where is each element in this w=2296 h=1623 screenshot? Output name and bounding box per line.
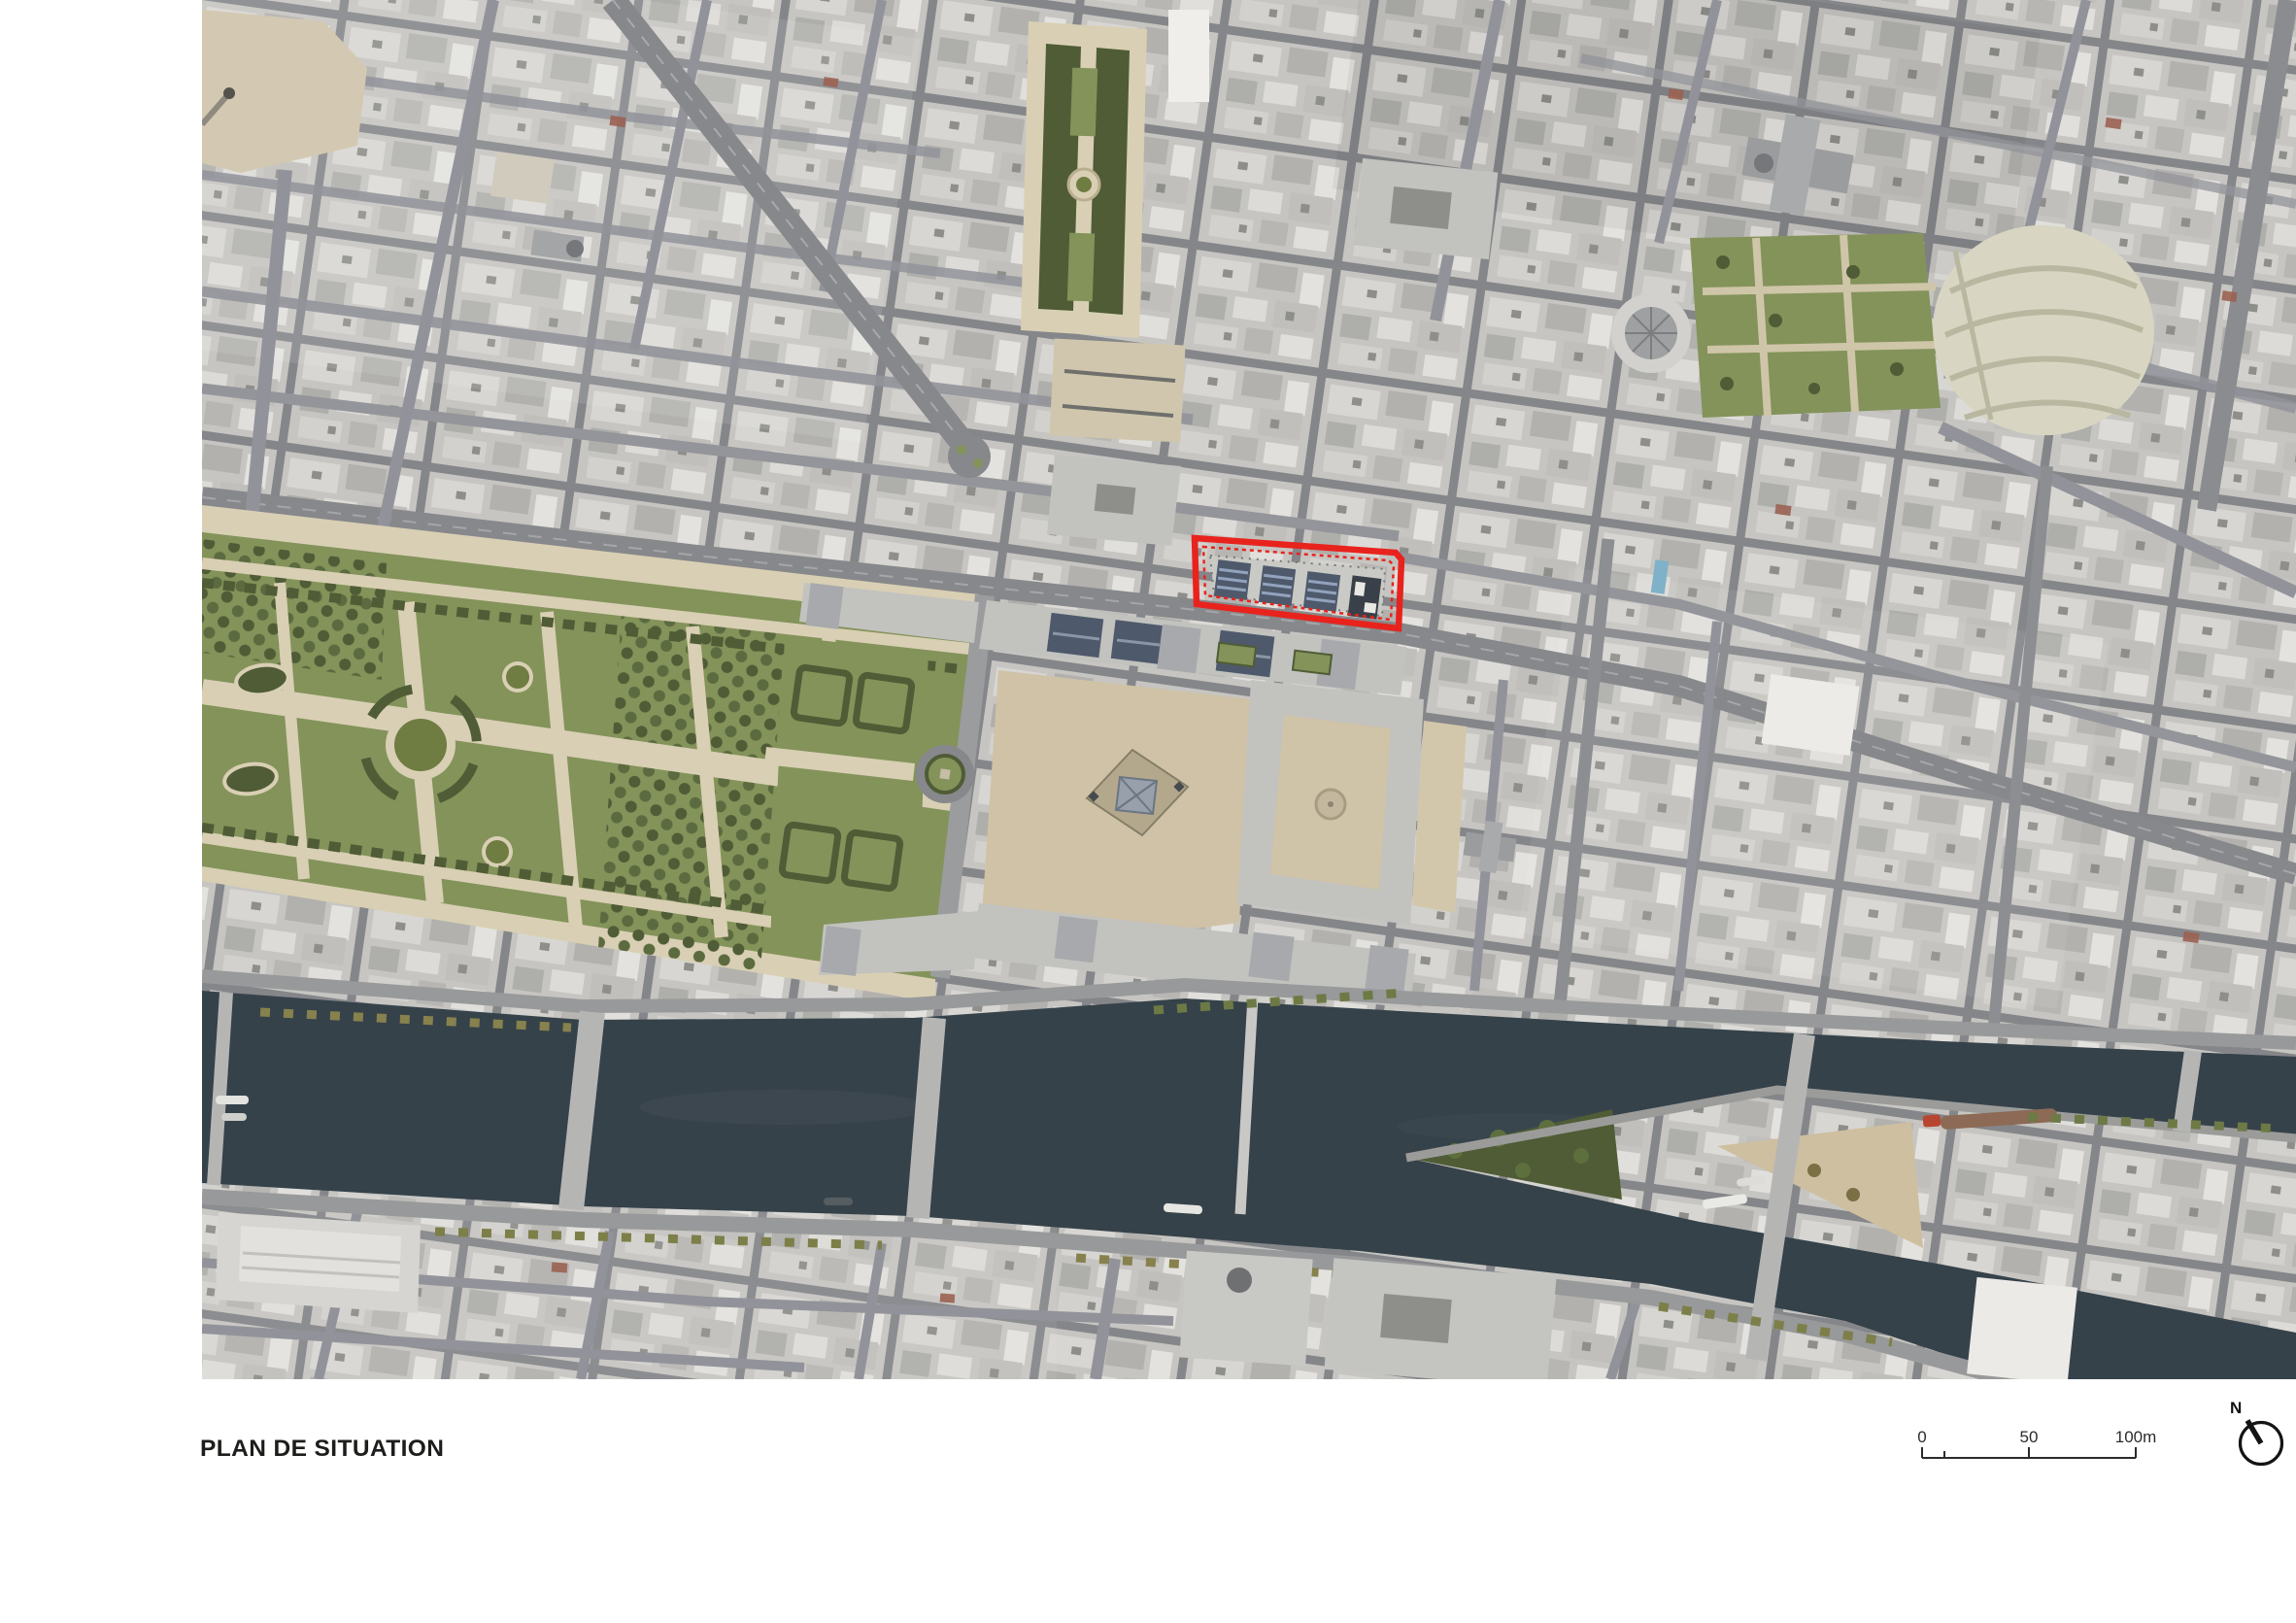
scaffolded-building — [1168, 10, 1209, 102]
palais-royal-fountain — [1076, 177, 1092, 192]
oratoire-garden-east — [1293, 651, 1332, 674]
banque-de-france — [1354, 158, 1499, 259]
aerial-map — [202, 0, 2296, 1379]
north-arrow-icon — [2222, 1397, 2296, 1471]
pont-du-carrousel — [918, 1018, 934, 1218]
samaritaine-roof — [1761, 674, 1859, 756]
institut-de-france — [1179, 1251, 1312, 1367]
vendome-column — [223, 87, 235, 99]
plan-sheet: PLAN DE SITUATION 0 50 100m N — [0, 0, 2296, 1623]
monnaie-de-paris — [1324, 1258, 1556, 1379]
place-andre-malraux — [948, 435, 991, 478]
scale-bar-rule — [1911, 1428, 2144, 1467]
bassin-nord — [506, 665, 529, 689]
bassin-sud — [486, 840, 509, 863]
marche-saint-honore — [490, 152, 555, 204]
oratoire-garden-west — [1217, 643, 1256, 666]
cour-buren — [1049, 339, 1185, 443]
aerial-map-svg — [202, 0, 2296, 1379]
page-title: PLAN DE SITUATION — [200, 1436, 444, 1463]
pont-au-change — [2181, 1051, 2193, 1132]
white-roofed-building — [1967, 1277, 2077, 1379]
grand-bassin-rond — [394, 719, 447, 771]
pavillon-de-flore — [821, 926, 861, 976]
arc-du-carrousel — [939, 768, 950, 779]
institut-dome — [1227, 1268, 1252, 1293]
north-arrow: N — [2222, 1397, 2296, 1471]
scale-bar: 0 50 100m — [1911, 1428, 2144, 1467]
musee-d-orsay — [216, 1212, 421, 1313]
